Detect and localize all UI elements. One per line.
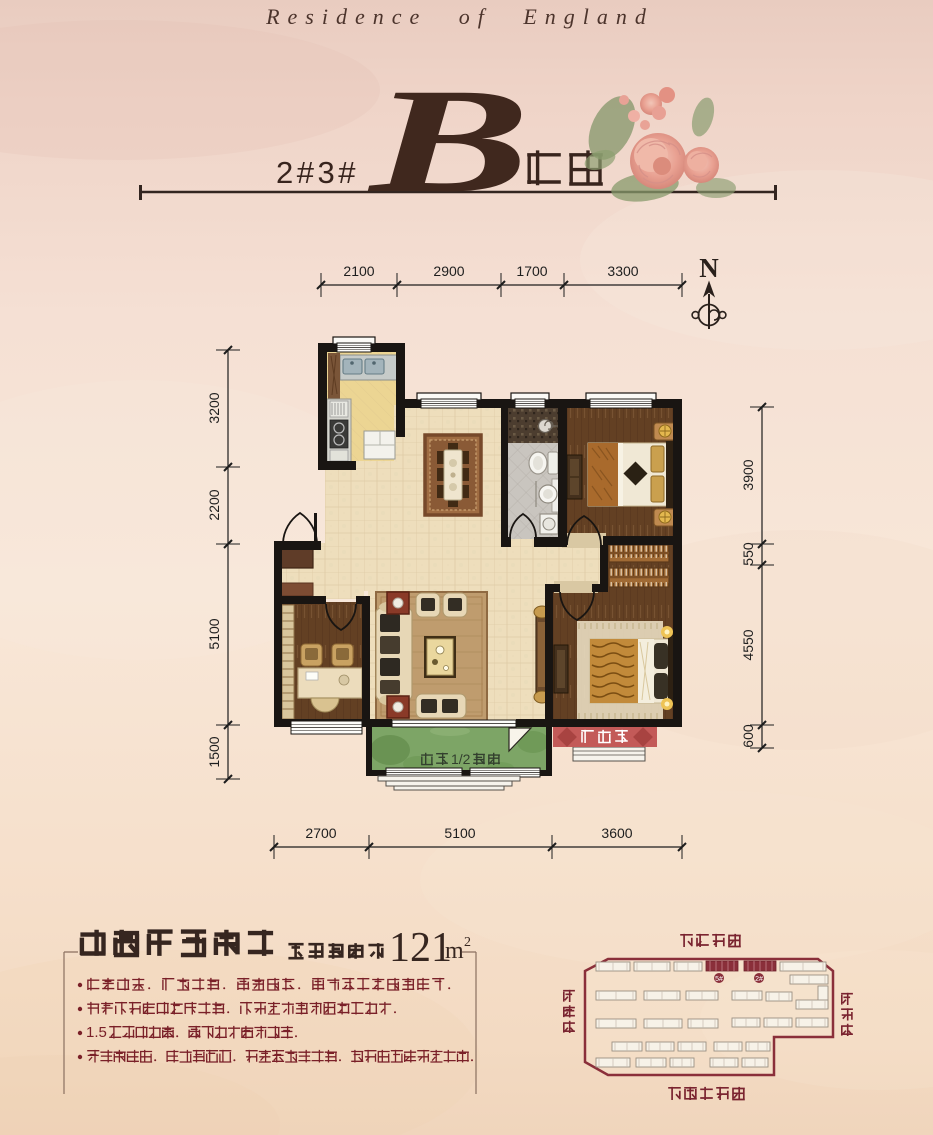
svg-text:2: 2 bbox=[464, 935, 471, 950]
svg-text:1500: 1500 bbox=[206, 736, 222, 767]
svg-text:Residence of England: Residence of England bbox=[265, 4, 654, 29]
svg-text:1/2: 1/2 bbox=[451, 751, 471, 767]
svg-text:2700: 2700 bbox=[305, 825, 336, 841]
svg-text:121: 121 bbox=[389, 925, 452, 971]
svg-text:2#: 2# bbox=[755, 976, 763, 983]
svg-text:2#3#: 2#3# bbox=[276, 155, 359, 190]
svg-text:4550: 4550 bbox=[740, 629, 756, 660]
svg-text:2100: 2100 bbox=[343, 263, 374, 279]
svg-text:3200: 3200 bbox=[206, 392, 222, 423]
svg-text:1.5: 1.5 bbox=[86, 1024, 107, 1041]
svg-text:5#: 5# bbox=[715, 976, 723, 983]
svg-text:B: B bbox=[367, 58, 530, 224]
svg-text:N: N bbox=[699, 253, 719, 283]
svg-text:2200: 2200 bbox=[206, 489, 222, 520]
svg-text:2900: 2900 bbox=[433, 263, 464, 279]
svg-text:5100: 5100 bbox=[444, 825, 475, 841]
svg-text:550: 550 bbox=[740, 542, 756, 566]
svg-text:3600: 3600 bbox=[601, 825, 632, 841]
svg-text:3300: 3300 bbox=[607, 263, 638, 279]
svg-text:3900: 3900 bbox=[740, 459, 756, 490]
svg-text:m: m bbox=[445, 938, 464, 964]
svg-text:5100: 5100 bbox=[206, 618, 222, 649]
svg-text:1700: 1700 bbox=[516, 263, 547, 279]
svg-text:600: 600 bbox=[740, 724, 756, 748]
